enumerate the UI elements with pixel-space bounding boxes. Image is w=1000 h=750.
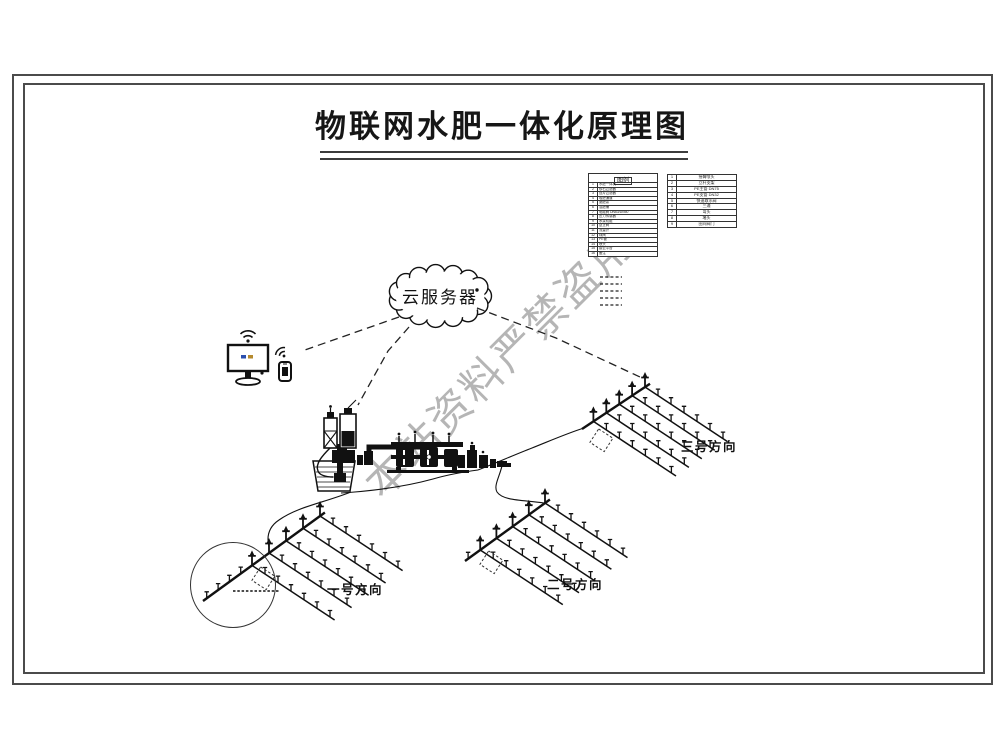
booster-pump-icon xyxy=(458,442,511,468)
wifi-icon xyxy=(274,346,290,361)
pipe-to-field1 xyxy=(268,492,351,547)
main-pipe xyxy=(203,513,325,602)
monitor-icon xyxy=(228,331,268,385)
drawing-sheet: 物联网水肥一体化原理图 本站资料严禁盗用 图例 1水肥一体机2砂石过滤器3叠片过… xyxy=(0,0,1000,750)
field-label-1: 一号方向 xyxy=(327,582,383,597)
link-cloud-to-station xyxy=(358,327,409,405)
field-grid-1: 一号方向 xyxy=(203,501,403,620)
wireless-links xyxy=(302,308,640,405)
filter-station-icon xyxy=(387,431,469,473)
field-grid-2: 二号方向 xyxy=(465,488,628,605)
legend-linetype-samples xyxy=(600,277,622,305)
wifi-icon xyxy=(246,339,249,342)
pipe-base xyxy=(341,470,478,493)
cloud-server-label: 云服务器 xyxy=(402,288,478,307)
link-cloud-to-field3 xyxy=(477,308,640,377)
main-pipe xyxy=(582,384,650,429)
field-label-2: 二号方向 xyxy=(547,577,603,592)
field-label-3: 三号方向 xyxy=(681,439,737,454)
fertigation-station xyxy=(268,400,584,547)
schematic-canvas: 云服务器 xyxy=(0,0,1000,750)
main-pipe xyxy=(465,500,550,562)
pipe-to-field2 xyxy=(496,461,544,503)
smartphone-icon xyxy=(274,346,291,381)
cloud-server-icon: 云服务器 xyxy=(389,265,491,328)
field-grid-3: 三号方向 xyxy=(582,372,737,476)
link-cloud-to-terminal xyxy=(302,317,399,351)
